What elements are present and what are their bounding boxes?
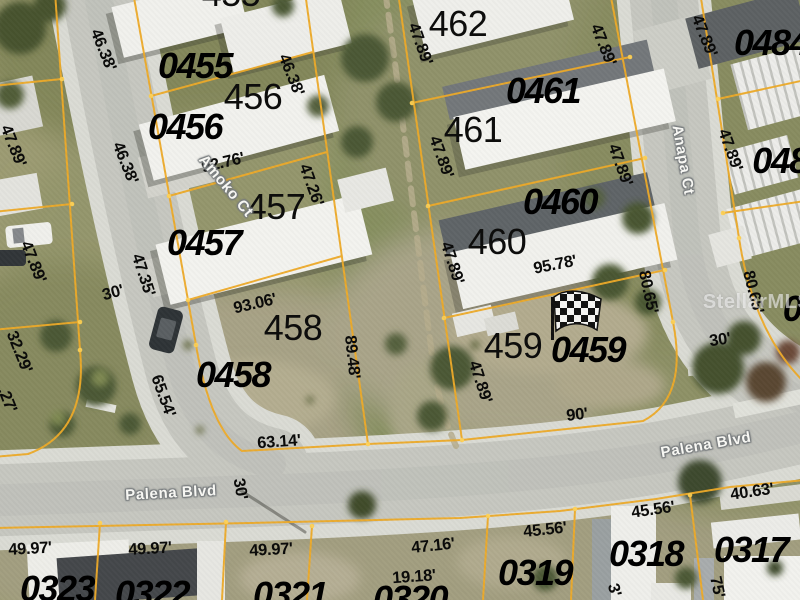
dimension-label: 19.18' — [392, 567, 436, 586]
parcel-id-label: 0455 — [158, 48, 232, 84]
parcel-id-label: 048 — [752, 143, 800, 179]
parcel-id-label: 0321 — [253, 577, 327, 600]
parcel-id-label: 0322 — [115, 576, 189, 600]
dimension-label: 89.48' — [342, 335, 363, 380]
lot-number-label: 459 — [484, 328, 543, 364]
lot-number-label: 455 — [202, 0, 261, 12]
lot-number-label: 456 — [224, 79, 283, 115]
dimension-label: 49.97' — [8, 540, 52, 559]
dimension-label: 49.97' — [249, 541, 293, 560]
dimension-label: 30' — [230, 477, 250, 501]
lot-number-label: 461 — [444, 112, 503, 148]
dimension-label: 90' — [566, 406, 589, 425]
dimension-label: 63.14' — [257, 432, 301, 451]
lot-number-label: 458 — [264, 310, 323, 346]
parcel-id-label: 0458 — [196, 357, 270, 393]
dimension-label: 75' — [707, 575, 728, 599]
dimension-label: 49.97' — [128, 540, 172, 559]
dimension-label: 30' — [708, 330, 731, 349]
aerial-parcel-map[interactable]: 0455 0456 0457 0458 0459 0460 0461 0484 … — [0, 0, 800, 600]
parcel-id-label: 0318 — [609, 536, 683, 572]
lot-number-label: 460 — [468, 224, 527, 260]
parcel-id-label: 0459 — [551, 332, 625, 368]
parcel-id-label: 0319 — [498, 555, 572, 591]
parcel-id-label: 0456 — [148, 109, 222, 145]
lot-number-label: 462 — [429, 6, 488, 42]
parcel-id-label: 0461 — [506, 73, 580, 109]
parcel-id-label: 0317 — [714, 532, 788, 568]
parcel-id-label: 0484 — [734, 25, 800, 61]
parcel-id-label: 0460 — [523, 184, 597, 220]
parcel-id-label: 0457 — [167, 225, 241, 261]
parcel-id-label: 0323 — [20, 571, 94, 600]
watermark: StellarMLS — [703, 292, 800, 312]
